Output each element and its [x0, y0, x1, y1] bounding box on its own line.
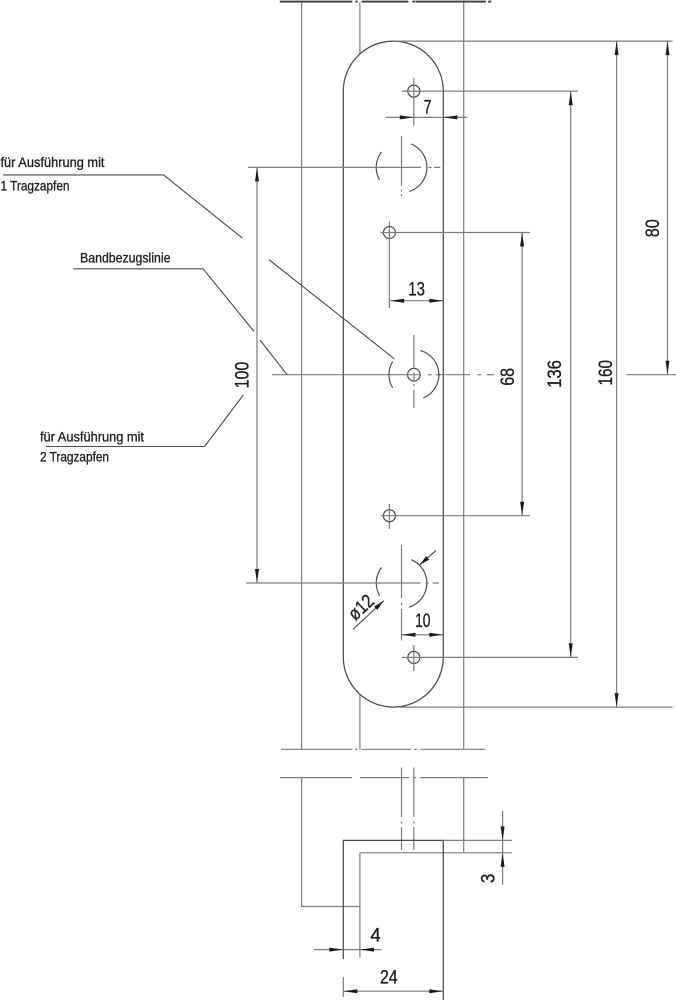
svg-text:für Ausführung mit: für Ausführung mit: [40, 429, 144, 444]
svg-text:160: 160: [596, 360, 617, 385]
svg-text:für Ausführung mit: für Ausführung mit: [1, 155, 105, 170]
svg-text:80: 80: [643, 219, 664, 237]
svg-text:10: 10: [415, 611, 430, 632]
svg-text:136: 136: [545, 360, 566, 388]
svg-text:13: 13: [408, 279, 425, 300]
svg-text:24: 24: [380, 968, 398, 989]
svg-text:4: 4: [370, 925, 381, 946]
svg-text:100: 100: [233, 362, 254, 389]
svg-text:Bandbezugslinie: Bandbezugslinie: [80, 251, 171, 266]
svg-text:7: 7: [424, 97, 432, 118]
svg-text:1 Tragzapfen: 1 Tragzapfen: [1, 179, 70, 194]
svg-text:68: 68: [498, 368, 519, 386]
svg-text:ø12: ø12: [344, 591, 378, 625]
svg-text:2 Tragzapfen: 2 Tragzapfen: [40, 449, 109, 464]
svg-text:3: 3: [479, 874, 500, 884]
